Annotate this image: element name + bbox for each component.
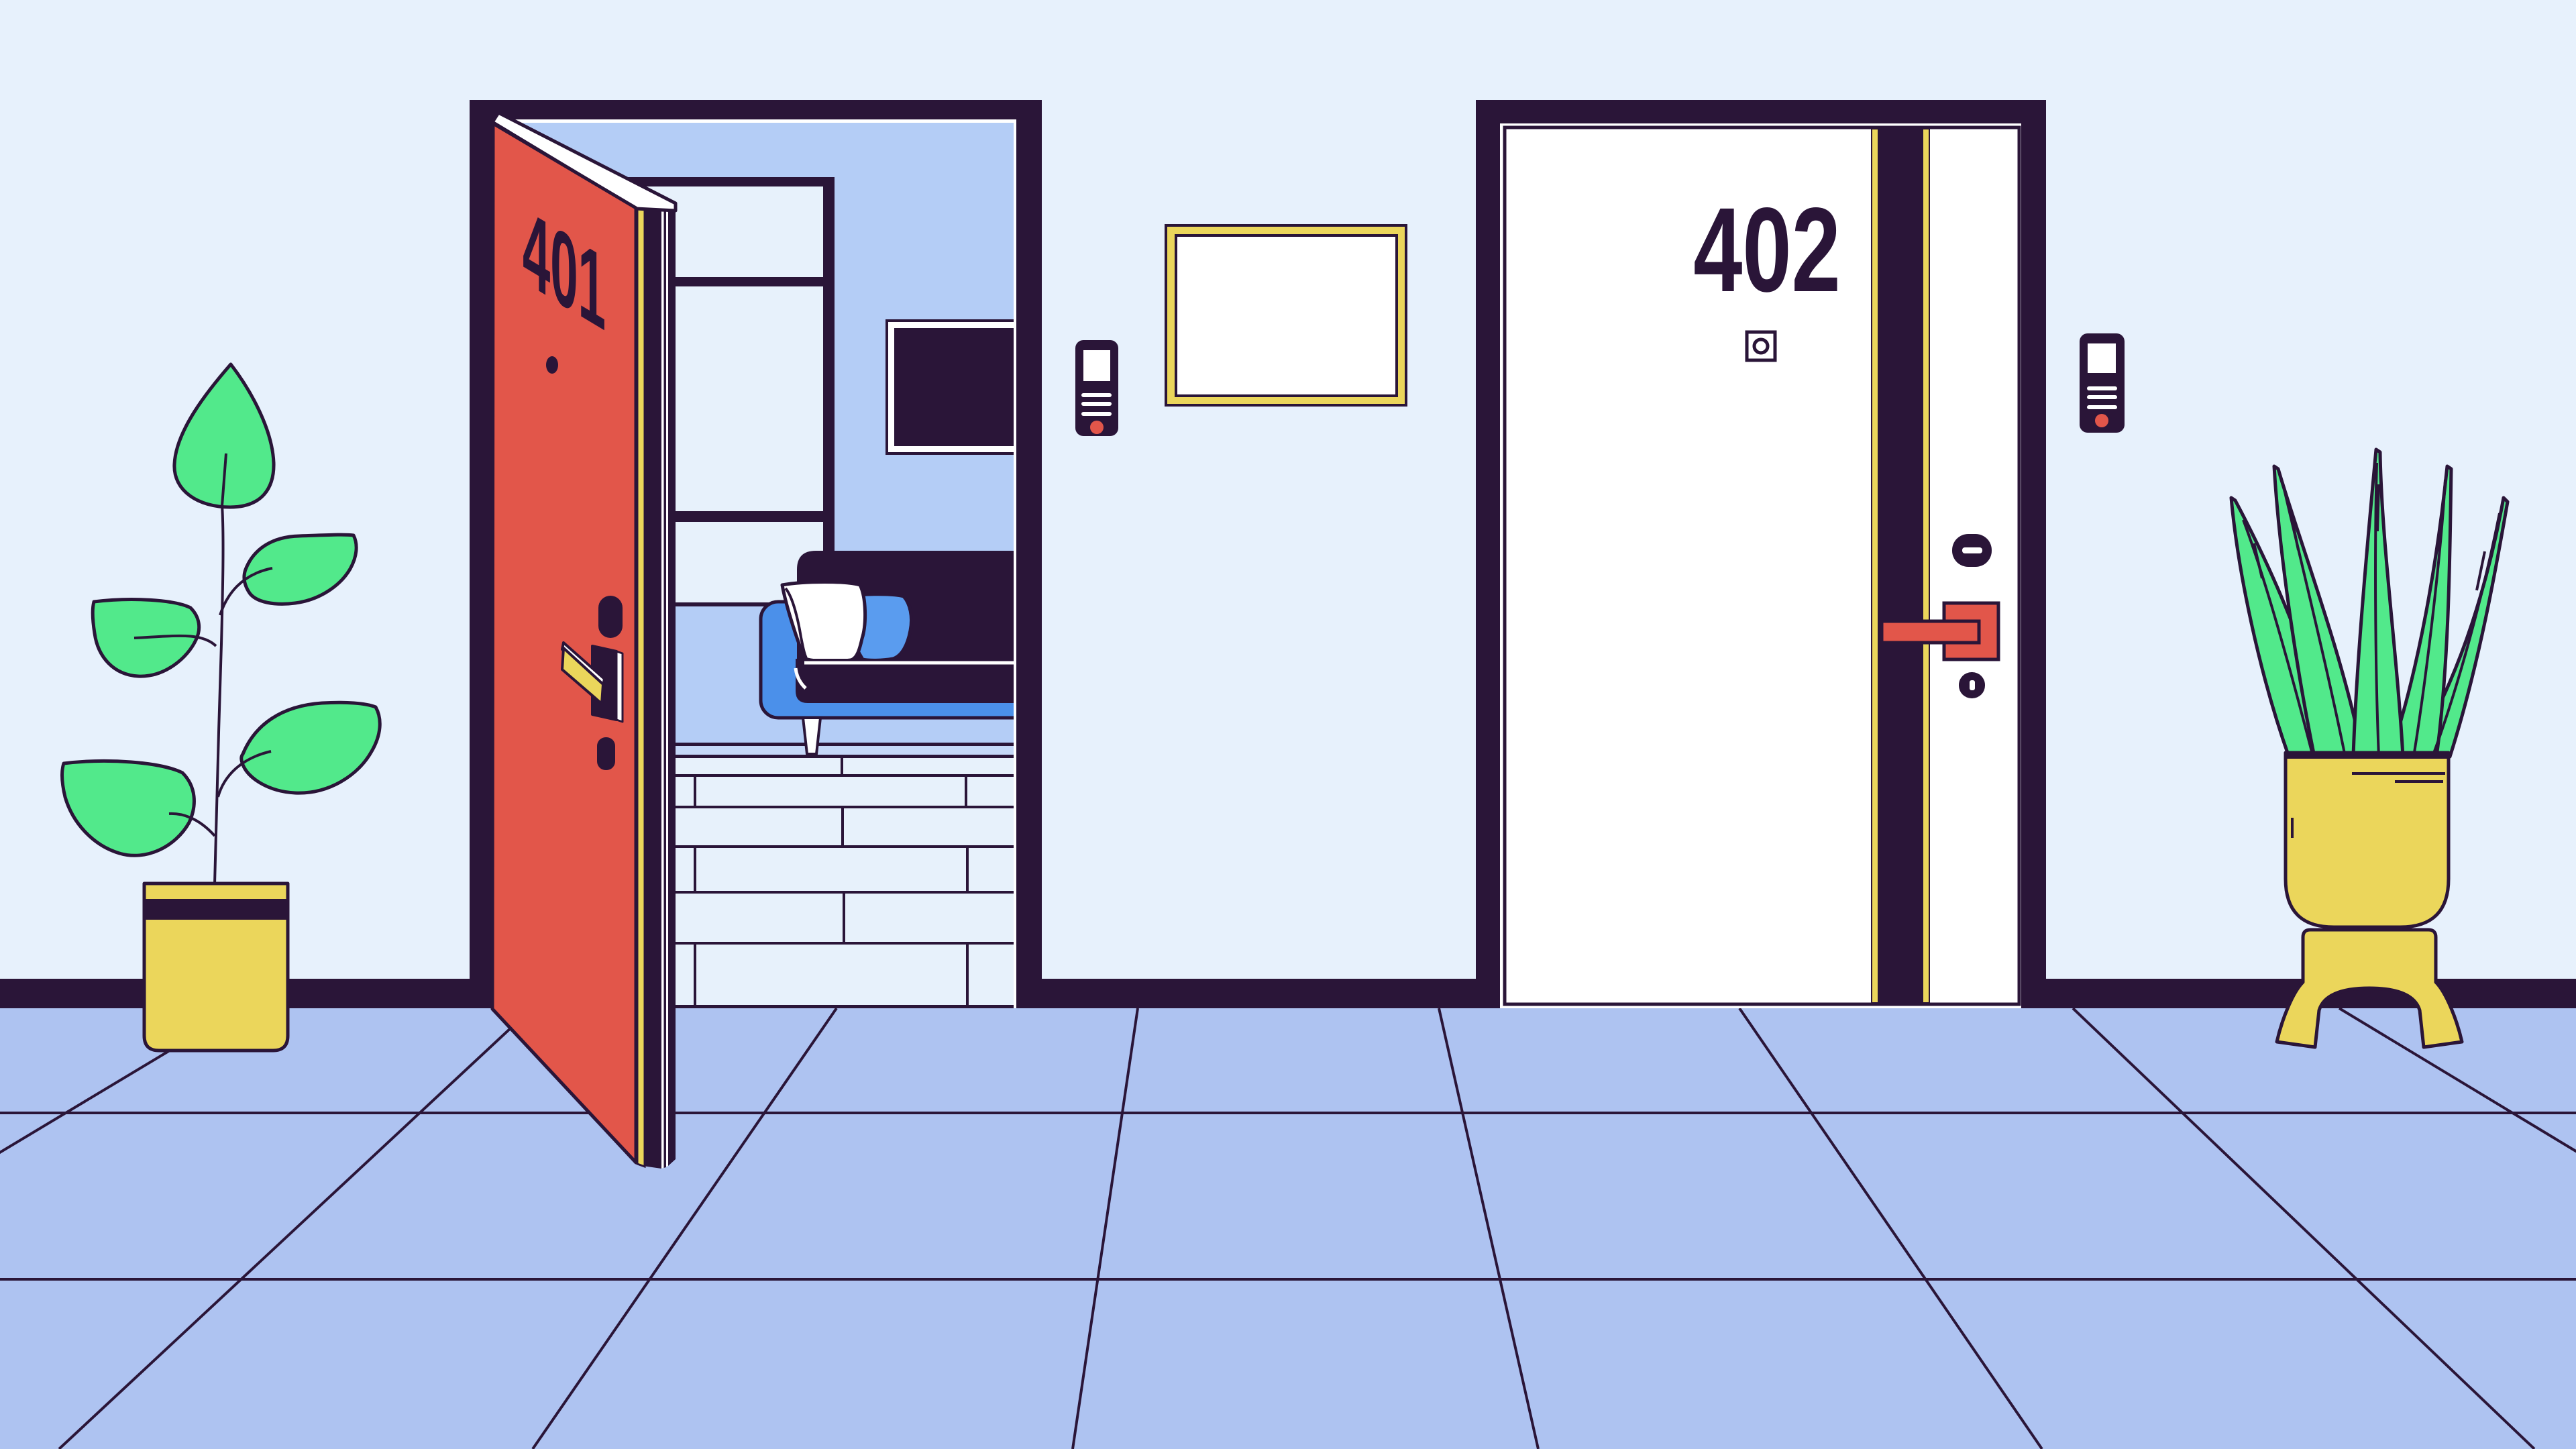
svg-text:402: 402: [1693, 183, 1841, 317]
